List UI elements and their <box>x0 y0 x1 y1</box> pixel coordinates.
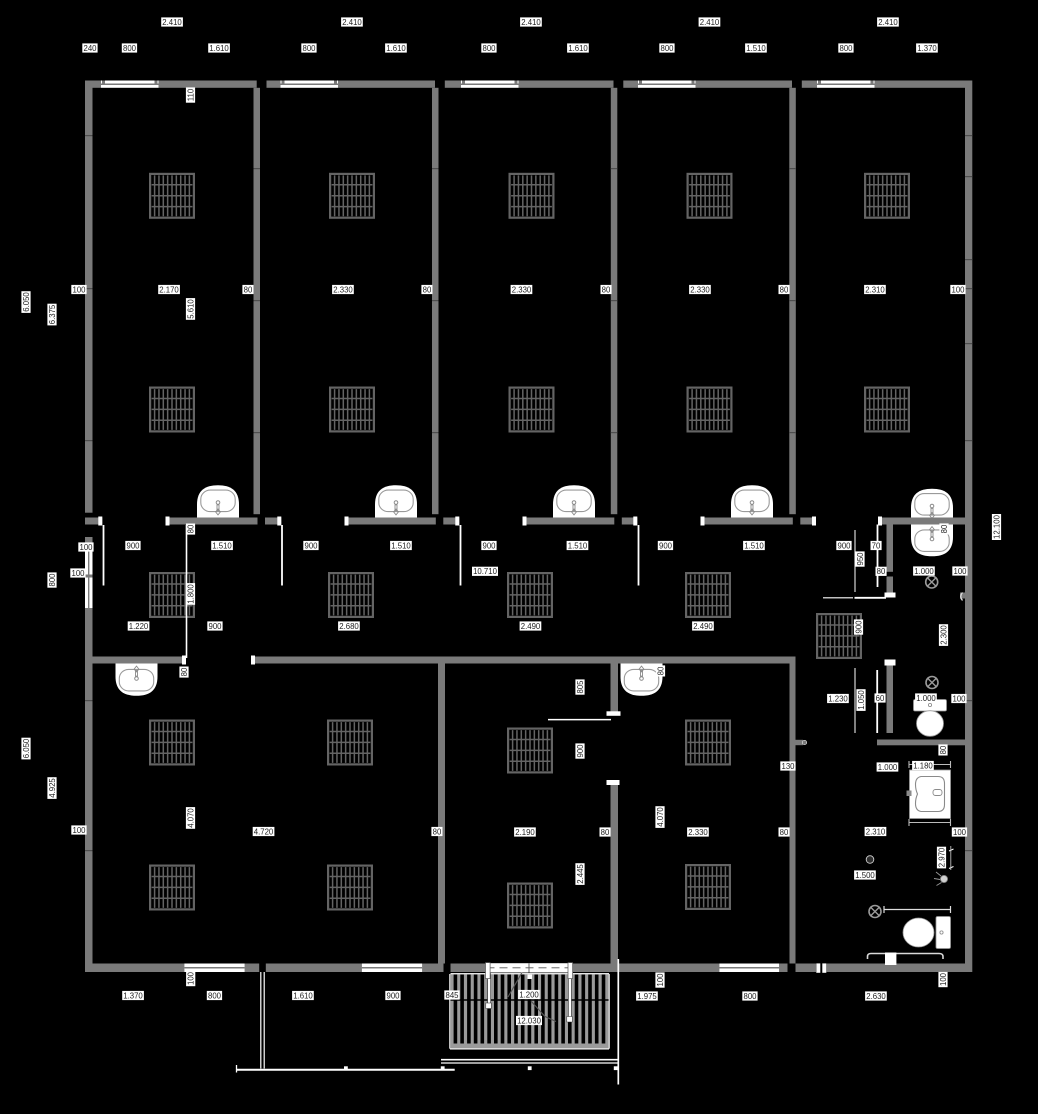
svg-text:2.970: 2.970 <box>937 847 946 867</box>
svg-text:1.610: 1.610 <box>386 44 406 53</box>
svg-text:2.410: 2.410 <box>521 18 541 27</box>
svg-text:6.050: 6.050 <box>22 738 31 758</box>
svg-text:5.610: 5.610 <box>186 299 195 319</box>
svg-text:1.370: 1.370 <box>917 44 937 53</box>
svg-text:2.445: 2.445 <box>576 864 585 884</box>
svg-text:1.500: 1.500 <box>855 871 875 880</box>
svg-text:900: 900 <box>659 541 673 550</box>
svg-text:800: 800 <box>123 44 137 53</box>
svg-text:2.190: 2.190 <box>515 828 535 837</box>
svg-text:80: 80 <box>940 524 949 533</box>
svg-text:800: 800 <box>482 44 496 53</box>
svg-text:800: 800 <box>743 992 757 1001</box>
svg-text:2.310: 2.310 <box>865 285 885 294</box>
svg-text:240: 240 <box>83 44 97 53</box>
svg-text:2.330: 2.330 <box>688 828 708 837</box>
svg-text:80: 80 <box>423 285 432 294</box>
svg-text:80: 80 <box>780 285 789 294</box>
svg-text:1.510: 1.510 <box>746 44 766 53</box>
svg-text:800: 800 <box>302 44 316 53</box>
svg-text:100: 100 <box>953 567 967 576</box>
svg-text:1.510: 1.510 <box>744 541 764 550</box>
svg-text:80: 80 <box>656 666 665 675</box>
svg-text:4.070: 4.070 <box>186 808 195 828</box>
svg-text:2.490: 2.490 <box>521 622 541 631</box>
svg-text:100: 100 <box>656 973 665 987</box>
svg-text:80: 80 <box>780 828 789 837</box>
svg-text:1.000: 1.000 <box>916 694 936 703</box>
svg-text:1.610: 1.610 <box>209 44 229 53</box>
svg-text:100: 100 <box>187 971 196 985</box>
svg-text:900: 900 <box>304 541 318 550</box>
svg-text:805: 805 <box>576 680 585 694</box>
svg-text:1.180: 1.180 <box>913 761 933 770</box>
svg-text:100: 100 <box>951 285 965 294</box>
svg-text:100: 100 <box>72 826 86 835</box>
svg-text:900: 900 <box>208 622 222 631</box>
svg-text:1.800: 1.800 <box>186 584 195 604</box>
svg-text:2.630: 2.630 <box>866 992 886 1001</box>
svg-text:2.300: 2.300 <box>939 625 948 645</box>
svg-text:1.510: 1.510 <box>212 541 232 550</box>
svg-text:100: 100 <box>939 972 948 986</box>
svg-text:4.720: 4.720 <box>254 827 274 836</box>
svg-text:2.330: 2.330 <box>333 285 353 294</box>
svg-text:1.230: 1.230 <box>828 694 848 703</box>
svg-text:100: 100 <box>79 543 93 552</box>
svg-text:900: 900 <box>126 541 140 550</box>
svg-text:100: 100 <box>952 694 966 703</box>
svg-text:1.975: 1.975 <box>637 992 657 1001</box>
svg-text:110: 110 <box>186 88 195 101</box>
svg-text:2.410: 2.410 <box>878 18 898 27</box>
svg-text:4.070: 4.070 <box>656 807 665 827</box>
svg-text:2.330: 2.330 <box>690 285 710 294</box>
svg-text:800: 800 <box>660 44 674 53</box>
svg-text:900: 900 <box>576 744 585 758</box>
svg-text:800: 800 <box>48 573 57 587</box>
svg-text:1.510: 1.510 <box>568 541 588 550</box>
svg-text:1.510: 1.510 <box>391 541 411 550</box>
svg-text:1.000: 1.000 <box>878 763 898 772</box>
svg-text:100: 100 <box>953 828 967 837</box>
svg-text:80: 80 <box>433 827 442 836</box>
svg-text:900: 900 <box>837 541 851 550</box>
svg-text:2.330: 2.330 <box>512 285 532 294</box>
svg-text:4.925: 4.925 <box>48 778 57 798</box>
svg-text:80: 80 <box>877 567 886 576</box>
svg-text:1.200: 1.200 <box>519 990 539 999</box>
svg-text:2.680: 2.680 <box>339 622 359 631</box>
svg-text:800: 800 <box>208 991 222 1000</box>
svg-text:900: 900 <box>386 991 400 1000</box>
svg-text:80: 80 <box>602 285 611 294</box>
svg-text:950: 950 <box>856 552 865 566</box>
svg-text:900: 900 <box>854 620 863 634</box>
svg-text:10.710: 10.710 <box>473 567 498 576</box>
svg-text:800: 800 <box>839 44 853 53</box>
svg-text:6.050: 6.050 <box>22 292 31 312</box>
svg-text:2.410: 2.410 <box>162 18 182 27</box>
svg-text:900: 900 <box>482 541 496 550</box>
svg-text:845: 845 <box>445 991 459 1000</box>
svg-text:1.000: 1.000 <box>914 567 934 576</box>
svg-text:100: 100 <box>72 285 86 294</box>
svg-text:130: 130 <box>781 762 795 771</box>
svg-text:2.310: 2.310 <box>866 827 886 836</box>
svg-text:80: 80 <box>186 524 195 533</box>
svg-text:12.100: 12.100 <box>992 514 1001 539</box>
svg-text:1.370: 1.370 <box>123 991 143 1000</box>
svg-text:60: 60 <box>876 694 885 703</box>
svg-text:2.410: 2.410 <box>342 18 362 27</box>
svg-text:80: 80 <box>244 285 253 294</box>
svg-text:1.610: 1.610 <box>293 991 313 1000</box>
svg-text:80: 80 <box>939 745 948 754</box>
svg-text:6.375: 6.375 <box>48 304 57 324</box>
svg-text:2.410: 2.410 <box>700 18 720 27</box>
svg-text:1.220: 1.220 <box>129 622 149 631</box>
svg-text:1.610: 1.610 <box>568 44 588 53</box>
svg-text:80: 80 <box>601 828 610 837</box>
svg-text:2.170: 2.170 <box>159 285 179 294</box>
svg-text:1.050: 1.050 <box>857 690 866 710</box>
svg-text:2.490: 2.490 <box>693 622 713 631</box>
svg-text:100: 100 <box>71 569 85 578</box>
svg-text:70: 70 <box>872 541 881 550</box>
svg-text:12.030: 12.030 <box>517 1016 542 1025</box>
svg-text:80: 80 <box>180 667 189 676</box>
